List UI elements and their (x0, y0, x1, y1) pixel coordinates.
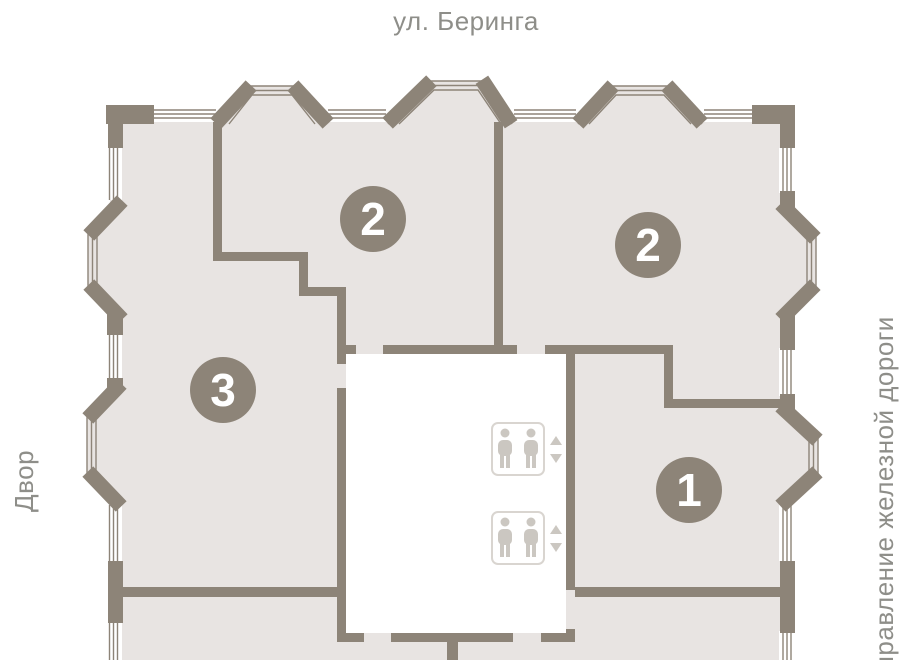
svg-text:3: 3 (210, 364, 236, 416)
floor-plan-page: 2 2 3 1 ул. Беринга Двор направление жел… (0, 0, 907, 660)
svg-text:2: 2 (360, 193, 386, 245)
apartment-badge[interactable]: 3 (190, 357, 256, 423)
street-label-top: ул. Беринга (393, 6, 539, 36)
apartment-badge[interactable]: 1 (656, 457, 722, 523)
courtyard-label-left: Двор (9, 450, 39, 512)
floor-plan: 2 2 3 1 ул. Беринга Двор направление жел… (0, 0, 907, 660)
svg-text:2: 2 (635, 219, 661, 271)
elevator-lobby (346, 354, 566, 633)
svg-text:1: 1 (676, 464, 702, 516)
apartment-badge[interactable]: 2 (615, 212, 681, 278)
apartment-badge[interactable]: 2 (340, 186, 406, 252)
railway-label-right: направление железной дороги (869, 316, 899, 660)
